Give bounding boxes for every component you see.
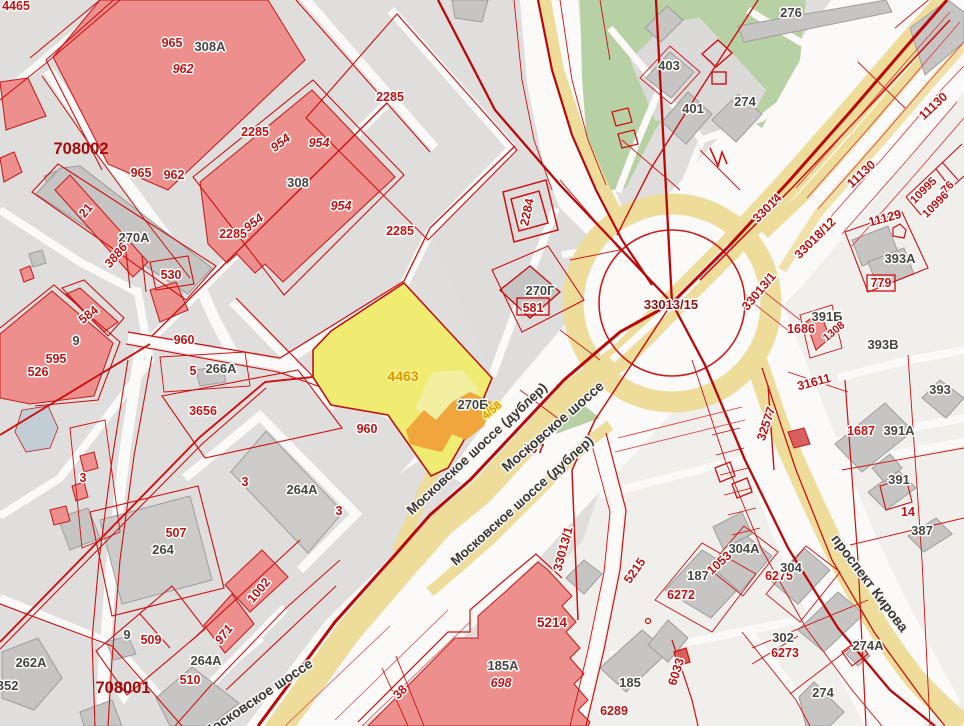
svg-text:507: 507 [166, 526, 187, 540]
svg-text:3656: 3656 [189, 404, 217, 418]
svg-text:274: 274 [812, 685, 834, 700]
svg-text:1686: 1686 [787, 322, 815, 336]
svg-text:6273: 6273 [771, 646, 799, 660]
svg-text:509: 509 [141, 633, 162, 647]
svg-text:708001: 708001 [95, 679, 150, 697]
svg-text:185A: 185A [487, 658, 519, 673]
svg-text:510: 510 [180, 673, 201, 687]
svg-text:387: 387 [911, 523, 933, 538]
svg-text:965: 965 [131, 166, 152, 180]
svg-text:393В: 393В [867, 337, 898, 352]
svg-text:185: 185 [619, 675, 641, 690]
svg-text:2285: 2285 [386, 224, 414, 238]
svg-text:8352: 8352 [0, 678, 18, 693]
svg-text:391A: 391A [883, 423, 915, 438]
svg-text:2285: 2285 [241, 125, 269, 139]
svg-text:304A: 304A [728, 541, 760, 556]
svg-text:33013/15: 33013/15 [644, 297, 698, 312]
svg-text:962: 962 [164, 168, 185, 182]
svg-text:2285: 2285 [219, 227, 247, 241]
svg-text:779: 779 [871, 276, 892, 290]
svg-text:4465: 4465 [2, 0, 30, 13]
svg-text:581: 581 [523, 301, 544, 315]
svg-text:954: 954 [309, 136, 330, 150]
svg-text:262A: 262A [15, 655, 47, 670]
svg-text:5214: 5214 [537, 615, 568, 630]
svg-text:270A: 270A [118, 230, 150, 245]
svg-text:2285: 2285 [376, 90, 404, 104]
svg-text:276: 276 [780, 5, 802, 20]
svg-text:270Г: 270Г [525, 283, 555, 298]
svg-text:302: 302 [772, 630, 794, 645]
svg-text:401: 401 [682, 101, 704, 116]
svg-text:595: 595 [46, 352, 67, 366]
svg-text:1687: 1687 [847, 424, 875, 438]
svg-text:960: 960 [174, 333, 195, 347]
svg-text:965: 965 [162, 36, 183, 50]
svg-text:6272: 6272 [667, 588, 695, 602]
svg-text:264: 264 [152, 542, 174, 557]
svg-text:391: 391 [888, 472, 910, 487]
svg-text:3: 3 [242, 475, 249, 489]
svg-text:960: 960 [357, 422, 378, 436]
svg-text:3: 3 [336, 504, 343, 518]
svg-text:9: 9 [72, 333, 79, 348]
svg-text:3: 3 [80, 471, 87, 485]
svg-text:274: 274 [734, 94, 756, 109]
svg-text:530: 530 [161, 268, 182, 282]
svg-text:708002: 708002 [53, 140, 108, 158]
svg-text:9: 9 [123, 627, 130, 642]
svg-text:304: 304 [780, 560, 802, 575]
svg-text:698: 698 [491, 676, 512, 690]
svg-text:526: 526 [28, 365, 49, 379]
svg-text:308: 308 [287, 175, 309, 190]
svg-text:5: 5 [190, 364, 197, 378]
svg-text:264A: 264A [190, 653, 222, 668]
svg-text:4463: 4463 [387, 368, 418, 384]
svg-text:308A: 308A [194, 39, 226, 54]
svg-text:14: 14 [901, 505, 915, 519]
svg-text:264A: 264A [286, 482, 318, 497]
svg-text:393A: 393A [884, 251, 916, 266]
svg-text:6289: 6289 [600, 704, 628, 718]
svg-text:187: 187 [687, 568, 709, 583]
svg-text:393: 393 [929, 382, 951, 397]
svg-text:266A: 266A [205, 361, 237, 376]
svg-text:954: 954 [331, 199, 352, 213]
svg-text:274A: 274A [852, 638, 884, 653]
svg-text:962: 962 [173, 62, 194, 76]
svg-text:403: 403 [658, 58, 680, 73]
